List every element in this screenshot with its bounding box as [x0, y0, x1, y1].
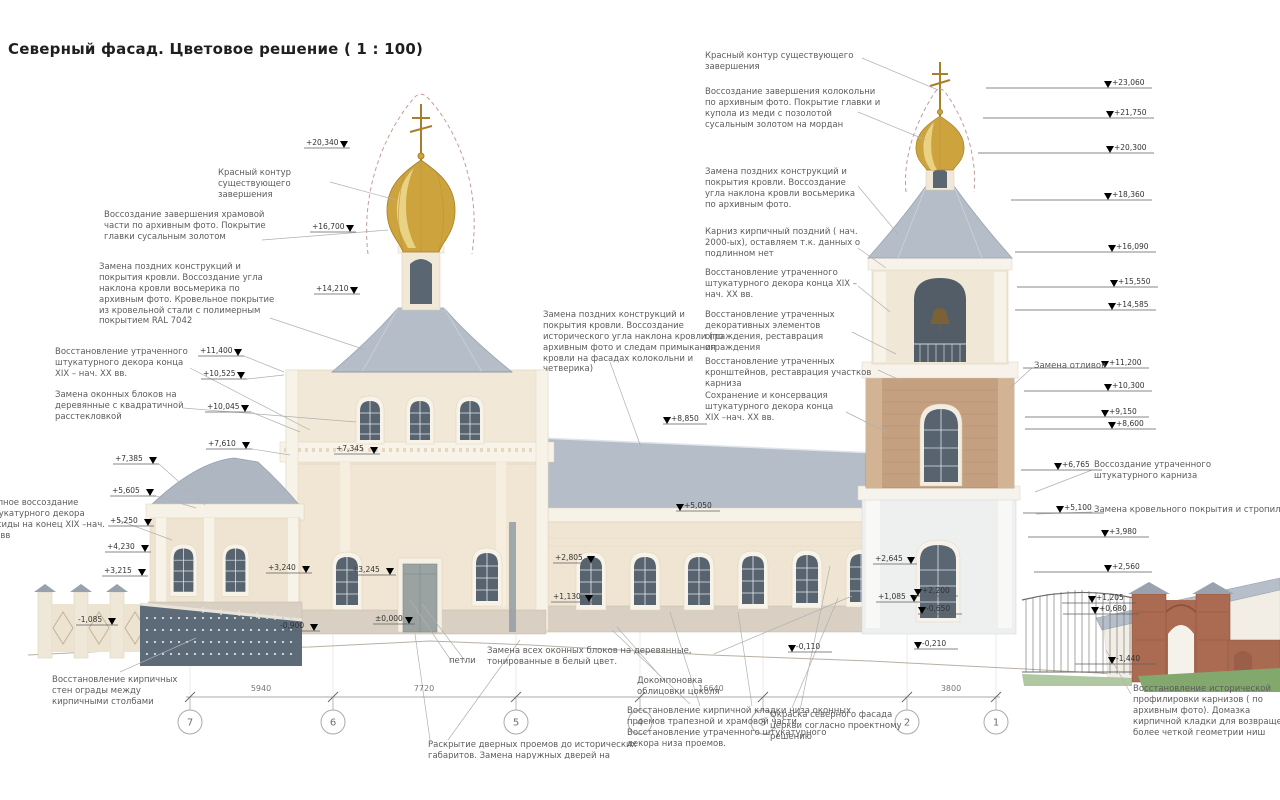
- annotation-fence-walls: Восстановление кирпичных стен ограды меж…: [52, 675, 190, 708]
- annotation-cornice-brick: Карниз кирпичный поздний ( нач. 2000-ых)…: [705, 227, 863, 260]
- svg-text:+20,340: +20,340: [306, 138, 339, 147]
- svg-text:+18,360: +18,360: [1112, 190, 1145, 199]
- svg-text:+16,090: +16,090: [1116, 242, 1149, 251]
- annotation-drips: Замена отливов: [1034, 361, 1106, 372]
- svg-text:±0,000: ±0,000: [375, 614, 403, 623]
- svg-text:6: 6: [330, 718, 336, 729]
- svg-text:+9,150: +9,150: [1109, 407, 1137, 416]
- svg-text:-1,440: -1,440: [1116, 654, 1140, 663]
- annotation-paint-facade: Окраска северного фасада церкви согласно…: [770, 710, 920, 743]
- svg-text:+16,700: +16,700: [312, 222, 345, 231]
- svg-text:+10,525: +10,525: [203, 369, 236, 378]
- annotation-belltower-dome: Воссоздание завершения колокольни по арх…: [705, 87, 883, 131]
- existing-contour-dashed: [367, 89, 975, 254]
- svg-text:+2,645: +2,645: [875, 554, 903, 563]
- annotation-roof-replace-right: Замена поздних конструкций и покрытия кр…: [705, 167, 857, 211]
- annotation-window-blocks-left: Замена оконных блоков на деревянные с кв…: [55, 390, 187, 423]
- annotation-roof-center: Замена поздних конструкций и покрытия кр…: [543, 310, 729, 375]
- annotation-brackets: Восстановление утраченных кронштейнов, р…: [705, 357, 883, 390]
- svg-text:+4,230: +4,230: [107, 542, 135, 551]
- drawing-canvas: +20,340 +16,700 +14,210 +11,400 +10,525 …: [0, 0, 1280, 800]
- svg-text:+5,605: +5,605: [112, 486, 140, 495]
- svg-text:+11,400: +11,400: [200, 346, 233, 355]
- annotation-cornice-profile: Восстановление исторической профилировки…: [1133, 684, 1280, 738]
- annotation-roof-replace-left: Замена поздних конструкций и покрытия кр…: [99, 262, 277, 327]
- svg-text:+15,550: +15,550: [1118, 277, 1151, 286]
- svg-text:+5,050: +5,050: [684, 501, 712, 510]
- svg-text:+10,300: +10,300: [1112, 381, 1145, 390]
- svg-text:+3,240: +3,240: [268, 563, 296, 572]
- svg-text:+10,045: +10,045: [207, 402, 240, 411]
- svg-text:+3,215: +3,215: [104, 566, 132, 575]
- svg-text:3800: 3800: [941, 684, 961, 693]
- annotation-apse-decor: Полное воссоздание штукатурного декора а…: [0, 498, 118, 542]
- annotation-roof-right-low: Замена кровельного покрытия и стропильны…: [1094, 505, 1280, 516]
- svg-text:+8,600: +8,600: [1116, 419, 1144, 428]
- bell-tower: [858, 62, 1020, 634]
- svg-text:-0,110: -0,110: [796, 642, 820, 651]
- annotation-plinth-cladding: Докомпоновка облицовки цоколя: [637, 676, 729, 698]
- svg-text:+5,100: +5,100: [1064, 503, 1092, 512]
- annotation-all-windows: Замена всех оконных блоков на деревянные…: [487, 646, 723, 668]
- annotation-stucco-restore-right: Восстановление утраченного штукатурного …: [705, 268, 865, 301]
- annotation-hinges: петли: [449, 656, 476, 667]
- annotation-cornice-restore: Воссоздание утраченного штукатурного кар…: [1094, 460, 1212, 482]
- svg-text:+1,085: +1,085: [878, 592, 906, 601]
- svg-text:+2,200: +2,200: [922, 586, 950, 595]
- main-cross: [410, 104, 432, 160]
- annotation-right-contour: Красный контур существующего завершения: [705, 51, 875, 73]
- svg-text:-0,650: -0,650: [926, 604, 950, 613]
- svg-text:+8,850: +8,850: [671, 414, 699, 423]
- annotation-railing: Восстановление утраченных декоративных э…: [705, 310, 853, 354]
- svg-text:-0,900: -0,900: [280, 621, 304, 630]
- svg-text:+21,750: +21,750: [1114, 108, 1147, 117]
- svg-text:+7,345: +7,345: [336, 444, 364, 453]
- drainpipe: [509, 522, 516, 632]
- refectory: [514, 438, 910, 632]
- drawing-title: Северный фасад. Цветовое решение ( 1 : 1…: [8, 40, 423, 58]
- annotation-conservation: Сохранение и консервация штукатурного де…: [705, 391, 847, 424]
- annotation-stucco-restore-left: Восстановление утраченного штукатурного …: [55, 347, 195, 380]
- svg-text:+1,205: +1,205: [1096, 593, 1124, 602]
- svg-text:+0,680: +0,680: [1099, 604, 1127, 613]
- svg-text:+1,130: +1,130: [553, 592, 581, 601]
- svg-text:-0,210: -0,210: [922, 639, 946, 648]
- annotation-dome-restore: Воссоздание завершения храмовой части по…: [104, 210, 272, 243]
- svg-text:5940: 5940: [251, 684, 271, 693]
- svg-text:+14,210: +14,210: [316, 284, 349, 293]
- svg-text:+6,765: +6,765: [1062, 460, 1090, 469]
- svg-text:+2,560: +2,560: [1112, 562, 1140, 571]
- svg-text:+7,385: +7,385: [115, 454, 143, 463]
- svg-text:5: 5: [513, 718, 519, 729]
- annotation-left-contour: Красный контур существующего завершения: [218, 168, 330, 201]
- svg-text:-1,085: -1,085: [78, 615, 102, 624]
- svg-text:+20,300: +20,300: [1114, 143, 1147, 152]
- svg-text:1: 1: [993, 718, 999, 729]
- svg-text:+3,980: +3,980: [1109, 527, 1137, 536]
- svg-text:7720: 7720: [414, 684, 434, 693]
- svg-text:+3,245: +3,245: [352, 565, 380, 574]
- svg-text:+2,805: +2,805: [555, 553, 583, 562]
- svg-text:+14,585: +14,585: [1116, 300, 1149, 309]
- svg-text:+11,200: +11,200: [1109, 358, 1142, 367]
- svg-text:+7,610: +7,610: [208, 439, 236, 448]
- svg-text:+23,060: +23,060: [1112, 78, 1145, 87]
- dimension-line: 5940 7720 16640 3800: [185, 684, 1001, 710]
- svg-text:7: 7: [187, 718, 193, 729]
